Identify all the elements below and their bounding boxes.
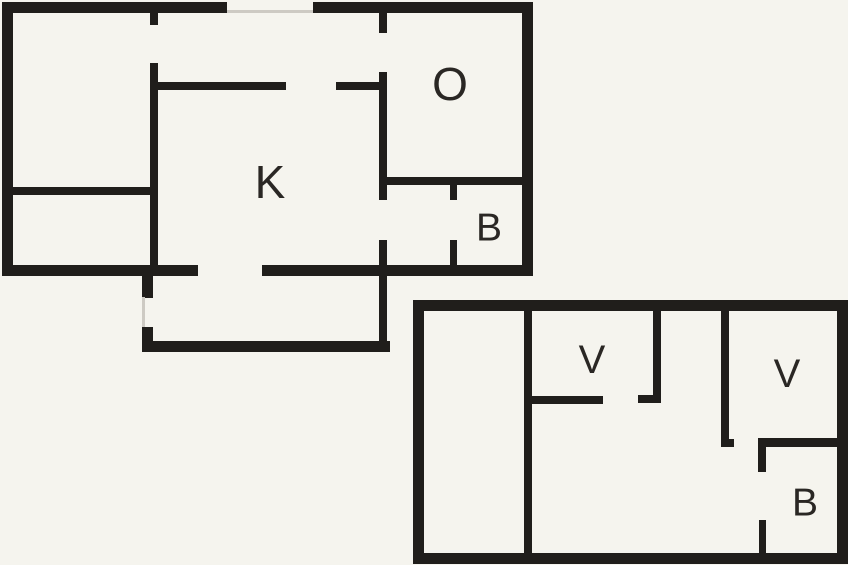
wall-segment xyxy=(524,311,532,553)
room-label-b-lower: B xyxy=(792,484,818,523)
wall-segment xyxy=(729,439,734,447)
floor-plan-canvas: O K B V V B xyxy=(0,0,848,565)
wall-segment xyxy=(413,300,424,564)
room-label-v-right: V xyxy=(774,354,801,394)
room-label-v-left: V xyxy=(579,340,606,380)
wall-segment xyxy=(413,300,848,311)
wall-segment xyxy=(653,311,661,403)
wall-segment xyxy=(758,447,766,472)
wall-segment xyxy=(413,553,848,564)
wall-segment xyxy=(758,438,842,447)
lower-floor-plan: V V B xyxy=(0,0,848,565)
wall-segment xyxy=(837,300,848,564)
wall-segment xyxy=(532,396,603,404)
wall-segment xyxy=(759,520,766,553)
wall-segment xyxy=(721,311,729,447)
